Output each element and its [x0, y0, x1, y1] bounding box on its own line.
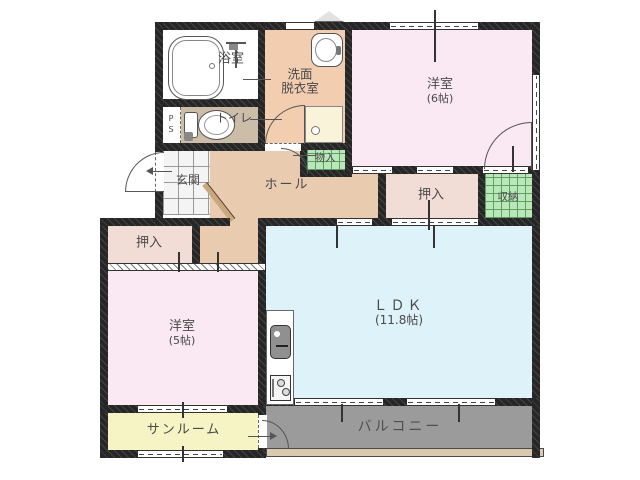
door-arc	[125, 152, 164, 192]
toilet-base	[184, 132, 193, 141]
washroom-label: 洗面 脱衣室	[281, 68, 319, 97]
washroom-label-line1: 洗面	[281, 68, 319, 82]
entry-arrow-line	[152, 171, 172, 172]
leader-line	[293, 155, 315, 156]
washbasin	[311, 33, 343, 67]
sink-faucet	[276, 345, 288, 347]
wall-tick	[458, 404, 460, 422]
wall	[100, 218, 108, 458]
wall-tick	[182, 446, 184, 462]
entrance-label: 玄関	[176, 174, 200, 188]
wall-tick	[336, 226, 338, 248]
washbasin-faucet	[336, 46, 341, 55]
entry-arrow-head	[146, 167, 153, 175]
wall	[300, 143, 348, 150]
sunroom-label: サンルーム	[147, 424, 222, 439]
sliding-door	[417, 166, 453, 174]
bathroom-label: 浴室	[218, 53, 244, 68]
balcony-arrow-head	[270, 432, 277, 440]
stove-burner	[282, 388, 290, 396]
sliding-door	[392, 218, 478, 226]
wall-tick	[433, 226, 435, 248]
washing-machine-drain	[311, 126, 320, 135]
ldk-name: ＬＤＫ	[374, 298, 425, 314]
bedroom-east-size: (6帖)	[427, 93, 454, 106]
toilet-label: トイレ	[216, 112, 252, 126]
bathtub-drain	[209, 63, 215, 69]
hall-label: ホール	[264, 179, 309, 194]
sliding-door	[353, 166, 392, 174]
sink-drain	[274, 331, 280, 337]
floor-plan: 浴室 洗面 脱衣室 洋室 (6帖) トイレ PS 玄関 ホール 物入 押入 収納…	[0, 0, 640, 480]
wall-tick	[434, 10, 436, 62]
kitchen-counter	[266, 310, 294, 405]
wall-tick	[217, 252, 219, 272]
bedroom-west-name: 洋室	[169, 320, 196, 335]
bedroom-east-name: 洋室	[427, 78, 454, 93]
vent-triangle	[314, 11, 344, 22]
sliding-partition	[108, 263, 265, 271]
wall-tick	[428, 200, 430, 230]
sliding-window	[295, 398, 383, 406]
kitchen-sink	[270, 325, 291, 359]
washing-machine	[305, 106, 343, 143]
sliding-window	[407, 398, 495, 406]
stove-grate	[272, 379, 274, 397]
wall	[100, 218, 230, 226]
balcony-ledge	[266, 448, 544, 457]
leader-line	[250, 119, 282, 120]
ldk-size: (11.8帖)	[374, 314, 425, 328]
leader-line	[243, 79, 271, 80]
bath-faucet	[229, 44, 238, 50]
wall-tick	[512, 146, 514, 172]
balcony-label: バルコニー	[358, 419, 443, 435]
closet-upper-label: 押入	[418, 189, 444, 204]
wall	[258, 22, 265, 151]
wall-tick	[178, 252, 180, 272]
storage-in-label: 物入	[315, 152, 336, 164]
pipe-space-label: PS	[166, 114, 175, 136]
wall	[155, 99, 265, 107]
wall-tick	[341, 404, 343, 422]
wall-tick	[182, 402, 184, 418]
sliding-window	[138, 450, 223, 458]
ldk-label: ＬＤＫ (11.8帖)	[374, 298, 425, 328]
window	[286, 22, 314, 30]
hall-floor	[345, 174, 378, 218]
closet-west-label: 押入	[136, 237, 162, 252]
bathtub	[168, 36, 224, 100]
wall	[155, 143, 265, 151]
window	[532, 75, 540, 170]
washbasin-bowl	[315, 38, 337, 62]
sliding-door	[337, 218, 372, 226]
wall	[155, 22, 163, 226]
wall	[345, 22, 352, 177]
bedroom-west-label: 洋室 (5帖)	[169, 320, 196, 348]
wall	[532, 398, 540, 458]
bedroom-west-size: (5帖)	[169, 335, 196, 348]
balcony-arrow-line	[248, 436, 270, 437]
kitchen-stove	[270, 375, 291, 401]
bedroom-east-label: 洋室 (6帖)	[427, 78, 454, 106]
storage-right-label: 収納	[498, 191, 519, 203]
washroom-label-line2: 脱衣室	[281, 82, 319, 96]
stove-burner	[277, 379, 285, 387]
